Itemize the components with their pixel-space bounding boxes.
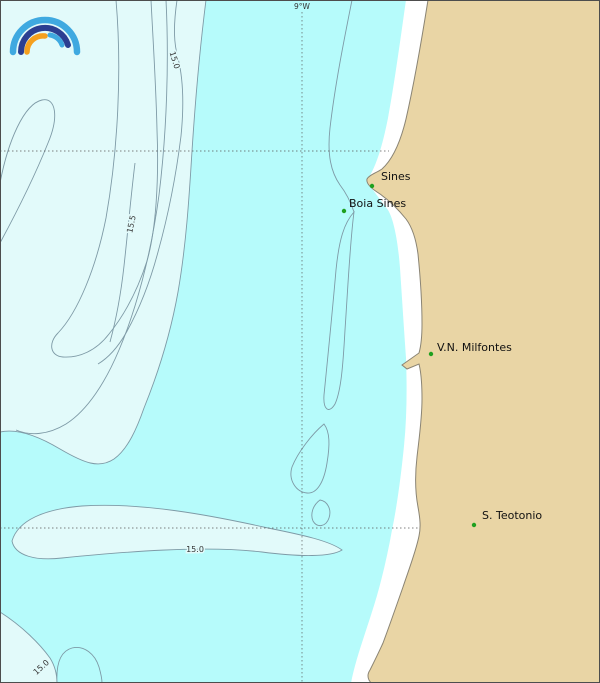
place-marker-vn-milfontes <box>429 352 433 356</box>
place-label-s-teotonio: S. Teotonio <box>482 509 542 522</box>
place-label-sines: Sines <box>381 170 411 183</box>
place-label-vn-milfontes: V.N. Milfontes <box>437 341 512 354</box>
place-marker-boia-sines <box>342 209 346 213</box>
place-label-boia-sines: Boia Sines <box>349 197 406 210</box>
map-canvas: 9°W 15.0 15.5 15.0 15.0 Sines Boia Sines… <box>0 0 600 683</box>
place-marker-sines <box>370 184 374 188</box>
contour-label-15-0-bottom: 15.0 <box>186 545 204 554</box>
coastal-contour-map: 9°W 15.0 15.5 15.0 15.0 Sines Boia Sines… <box>0 0 600 683</box>
place-marker-s-teotonio <box>472 523 476 527</box>
meridian-label-9w: 9°W <box>294 2 311 11</box>
